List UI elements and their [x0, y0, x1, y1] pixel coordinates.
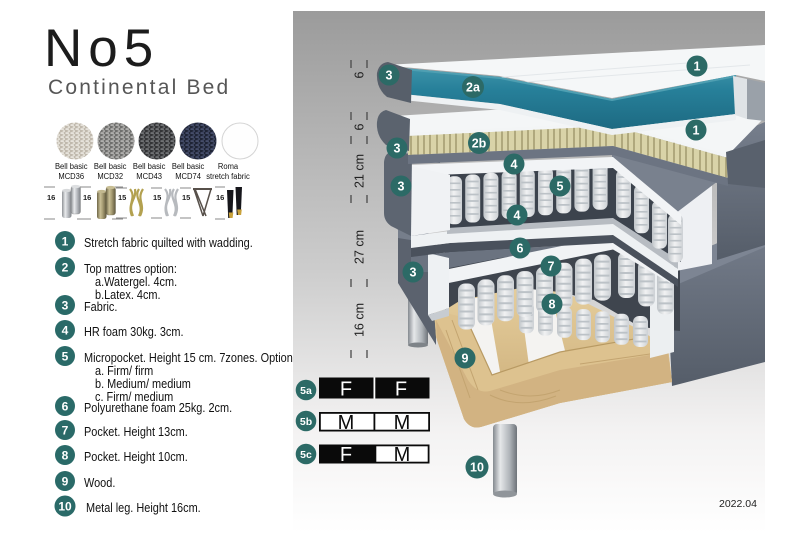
svg-text:3: 3 [394, 142, 401, 156]
svg-text:5c: 5c [300, 449, 312, 461]
svg-text:F: F [340, 444, 352, 466]
svg-text:6: 6 [62, 399, 69, 413]
svg-text:M: M [394, 412, 411, 434]
svg-text:1: 1 [693, 124, 700, 138]
svg-text:7: 7 [62, 423, 69, 437]
svg-text:21 cm: 21 cm [352, 154, 366, 188]
svg-text:6: 6 [352, 123, 366, 130]
svg-text:2a: 2a [466, 81, 481, 95]
svg-text:16 cm: 16 cm [352, 303, 366, 337]
svg-text:10: 10 [58, 499, 72, 513]
svg-text:9: 9 [462, 352, 469, 366]
svg-text:3: 3 [62, 298, 69, 312]
svg-text:27 cm: 27 cm [352, 230, 366, 264]
svg-text:10: 10 [470, 461, 484, 475]
svg-text:3: 3 [386, 69, 393, 83]
svg-text:5b: 5b [300, 416, 312, 428]
svg-text:4: 4 [511, 158, 518, 172]
svg-text:1: 1 [62, 234, 69, 248]
svg-text:M: M [394, 444, 411, 466]
svg-text:8: 8 [62, 448, 69, 462]
svg-text:1: 1 [694, 60, 701, 74]
svg-text:8: 8 [549, 298, 556, 312]
svg-text:M: M [338, 412, 355, 434]
svg-text:F: F [340, 379, 352, 401]
svg-text:3: 3 [410, 266, 417, 280]
svg-text:2022.04: 2022.04 [719, 498, 757, 510]
svg-text:2: 2 [62, 260, 69, 274]
svg-text:6: 6 [517, 242, 524, 256]
svg-text:9: 9 [62, 474, 69, 488]
svg-text:5a: 5a [300, 385, 312, 397]
svg-text:4: 4 [62, 323, 69, 337]
svg-text:5: 5 [62, 349, 69, 363]
svg-text:7: 7 [548, 260, 555, 274]
svg-text:F: F [395, 379, 407, 401]
svg-text:3: 3 [398, 180, 405, 194]
svg-text:6: 6 [352, 71, 366, 78]
svg-text:4: 4 [514, 209, 521, 223]
svg-text:5: 5 [557, 180, 564, 194]
svg-text:2b: 2b [472, 137, 487, 151]
